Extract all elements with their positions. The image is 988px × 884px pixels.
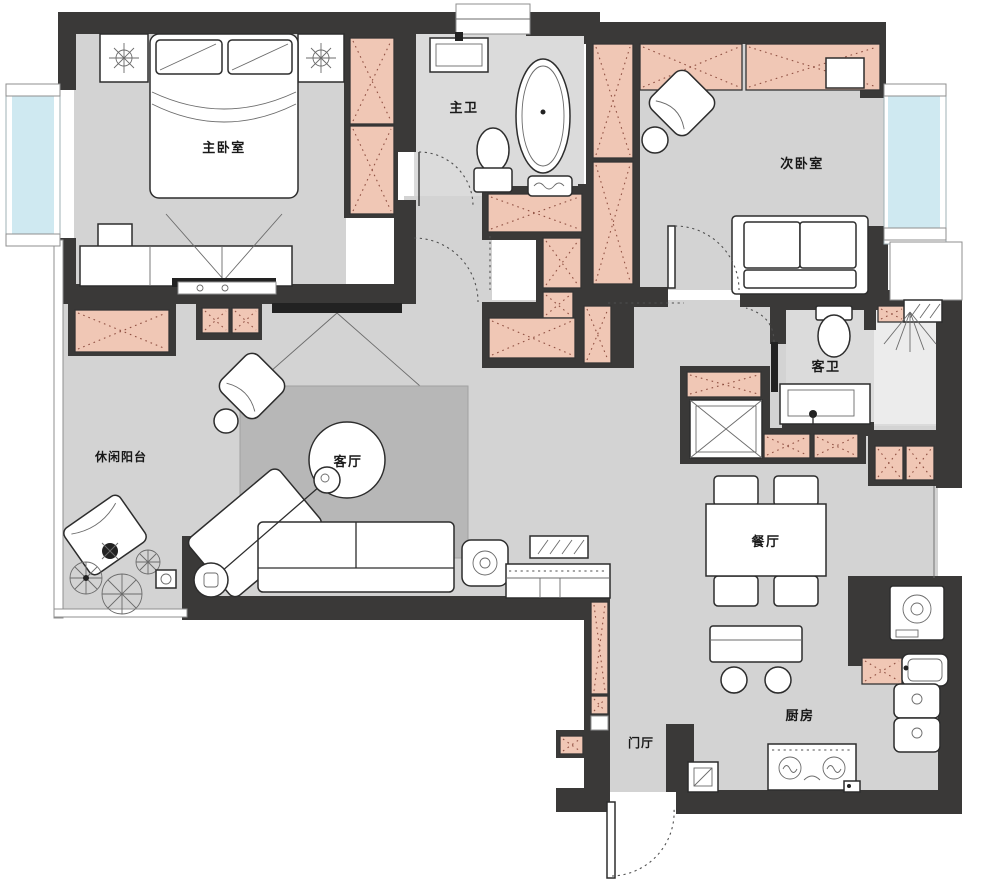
storage-cabinet-open (591, 716, 608, 730)
room-label: 客卫 (811, 359, 840, 375)
bar-table (710, 626, 802, 662)
sideboard (506, 564, 610, 598)
window-sill (6, 84, 60, 96)
storage-cabinet (584, 306, 611, 363)
tv (272, 303, 402, 313)
dining-chair (774, 576, 818, 606)
bathtub-drain (541, 110, 546, 115)
ac-platform (890, 242, 962, 300)
door-swing-arc (612, 808, 674, 876)
dining-chair (714, 576, 758, 606)
plant (70, 562, 102, 594)
toilet (818, 315, 850, 357)
floor-plan: 主卧室 主卫 次卧室 (0, 0, 988, 884)
storage-cabinet (75, 310, 169, 352)
cooktop (768, 744, 856, 790)
room-label: 厨房 (785, 708, 814, 724)
side-table (214, 409, 238, 433)
corner-unit (688, 762, 718, 792)
sofa-seat-band (744, 270, 856, 288)
speaker (462, 540, 508, 586)
sofa (732, 216, 868, 294)
wall-segment (676, 790, 962, 814)
storage-cabinet (350, 38, 394, 124)
kitchen-sink (902, 654, 948, 686)
small-sink (528, 176, 572, 196)
arc-floor-lamp-base (194, 563, 228, 597)
bar-stool (765, 667, 791, 693)
dining-chair (714, 476, 758, 506)
balcony-rail (54, 609, 187, 617)
arc-floor-lamp-head (314, 467, 340, 493)
balcony-device (156, 570, 176, 588)
toilet (477, 128, 509, 172)
toilet-tank (474, 168, 512, 192)
dining-chair (774, 476, 818, 506)
storage-cabinet (488, 194, 582, 232)
vanity-sink (780, 384, 870, 424)
wall-segment (864, 302, 876, 330)
room-label: 客厅 (333, 454, 362, 470)
storage-cabinet (687, 372, 761, 397)
window-glass (12, 96, 54, 234)
wall-segment (556, 788, 610, 812)
sofa-cushion (744, 222, 800, 268)
wall-shelf (826, 58, 864, 88)
dining-unit (690, 400, 762, 458)
sofa-cushion (800, 222, 856, 268)
storage-cabinet (489, 318, 575, 358)
bedroom-stool (98, 224, 132, 248)
plant (102, 574, 142, 614)
room-label: 休闲阳台 (94, 449, 147, 464)
storage-cabinet (591, 696, 608, 714)
room-label: 门厅 (628, 735, 654, 750)
wall-segment (770, 302, 786, 344)
room-label: 主卫 (449, 100, 478, 116)
wall-niche-shelf (178, 282, 276, 294)
window-sill (6, 234, 60, 246)
window-glass (888, 96, 940, 228)
room-label: 主卧室 (202, 140, 246, 156)
bathtub (516, 59, 570, 173)
storage-cabinet (862, 658, 902, 684)
balcony-rail (54, 240, 63, 618)
window-sill (884, 84, 946, 96)
wall-segment (182, 596, 608, 620)
wall-segment (586, 287, 668, 307)
room-label: 餐厅 (750, 534, 780, 550)
washing-machine (890, 586, 944, 640)
wall-segment (58, 12, 76, 90)
entry-door-leaf (607, 802, 615, 878)
storage-cabinet (764, 434, 810, 458)
plant (102, 543, 118, 559)
door-leaf (668, 226, 675, 288)
storage-cabinet (591, 602, 608, 694)
storage-cabinet (543, 238, 581, 288)
switch-box (844, 781, 860, 792)
door-leaf (771, 342, 778, 392)
storage-cabinet (814, 434, 858, 458)
wardrobe (593, 162, 633, 284)
bar-stool (721, 667, 747, 693)
room-label: 次卧室 (780, 156, 824, 172)
faucet-icon (455, 32, 463, 41)
side-table (642, 127, 668, 153)
window-sill (884, 228, 946, 240)
fridge (894, 684, 940, 752)
washbasin (430, 38, 488, 72)
